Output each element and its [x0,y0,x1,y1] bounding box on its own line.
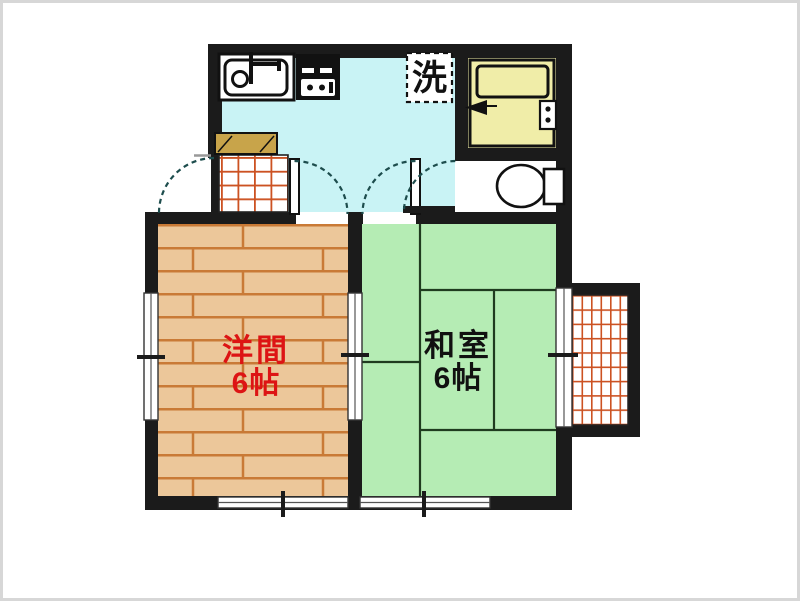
western-room-size: 6帖 [232,367,281,400]
floorplan-image: 洗 洋間 6帖 和室 6帖 [0,0,800,601]
japanese-room-size: 6帖 [434,362,483,395]
washing-machine-label: 洗 [412,59,447,98]
floor-plan: 洗 洋間 6帖 和室 6帖 [0,0,800,601]
japanese-room-label: 和室 6帖 [424,328,492,395]
shoe-cabinet [215,133,277,154]
toilet-icon [497,165,564,207]
sink-icon [219,52,294,100]
entrance-door-arc [159,158,214,213]
western-room-label: 洋間 6帖 [222,333,290,400]
washing-machine-box: 洗 [407,53,452,102]
japanese-room-name: 和室 [424,328,492,363]
stove-icon [296,54,340,100]
western-room-name: 洋間 [222,333,290,368]
bath-faucet-unit [540,101,556,129]
bathtub-icon [477,66,548,97]
balcony-deck [572,295,628,425]
genkan-entrance [219,155,288,212]
